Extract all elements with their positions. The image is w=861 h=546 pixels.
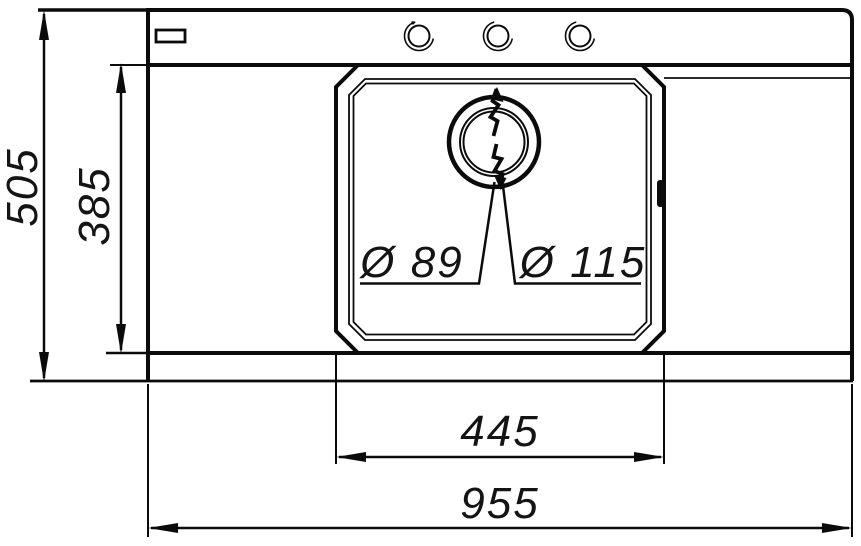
sink-drawing: 505 385 Ø 89 Ø 115 445 955 xyxy=(0,0,861,546)
drain-inner-diameter-label: Ø 89 xyxy=(358,238,463,287)
dim-overall-width-label: 955 xyxy=(460,479,539,528)
faucet-hole-left xyxy=(404,21,433,50)
overflow-mark xyxy=(657,180,664,207)
dim-bowl-width-label: 445 xyxy=(460,407,539,456)
logo-plate xyxy=(156,30,185,42)
technical-drawing-canvas: 505 385 Ø 89 Ø 115 445 955 xyxy=(0,0,861,546)
drain-outer-diameter-label: Ø 115 xyxy=(518,238,647,287)
dim-overall-height-label: 505 xyxy=(0,147,47,226)
dim-inner-depth-label: 385 xyxy=(70,166,119,245)
faucet-hole-right xyxy=(565,22,594,51)
faucet-hole-center xyxy=(483,22,512,51)
